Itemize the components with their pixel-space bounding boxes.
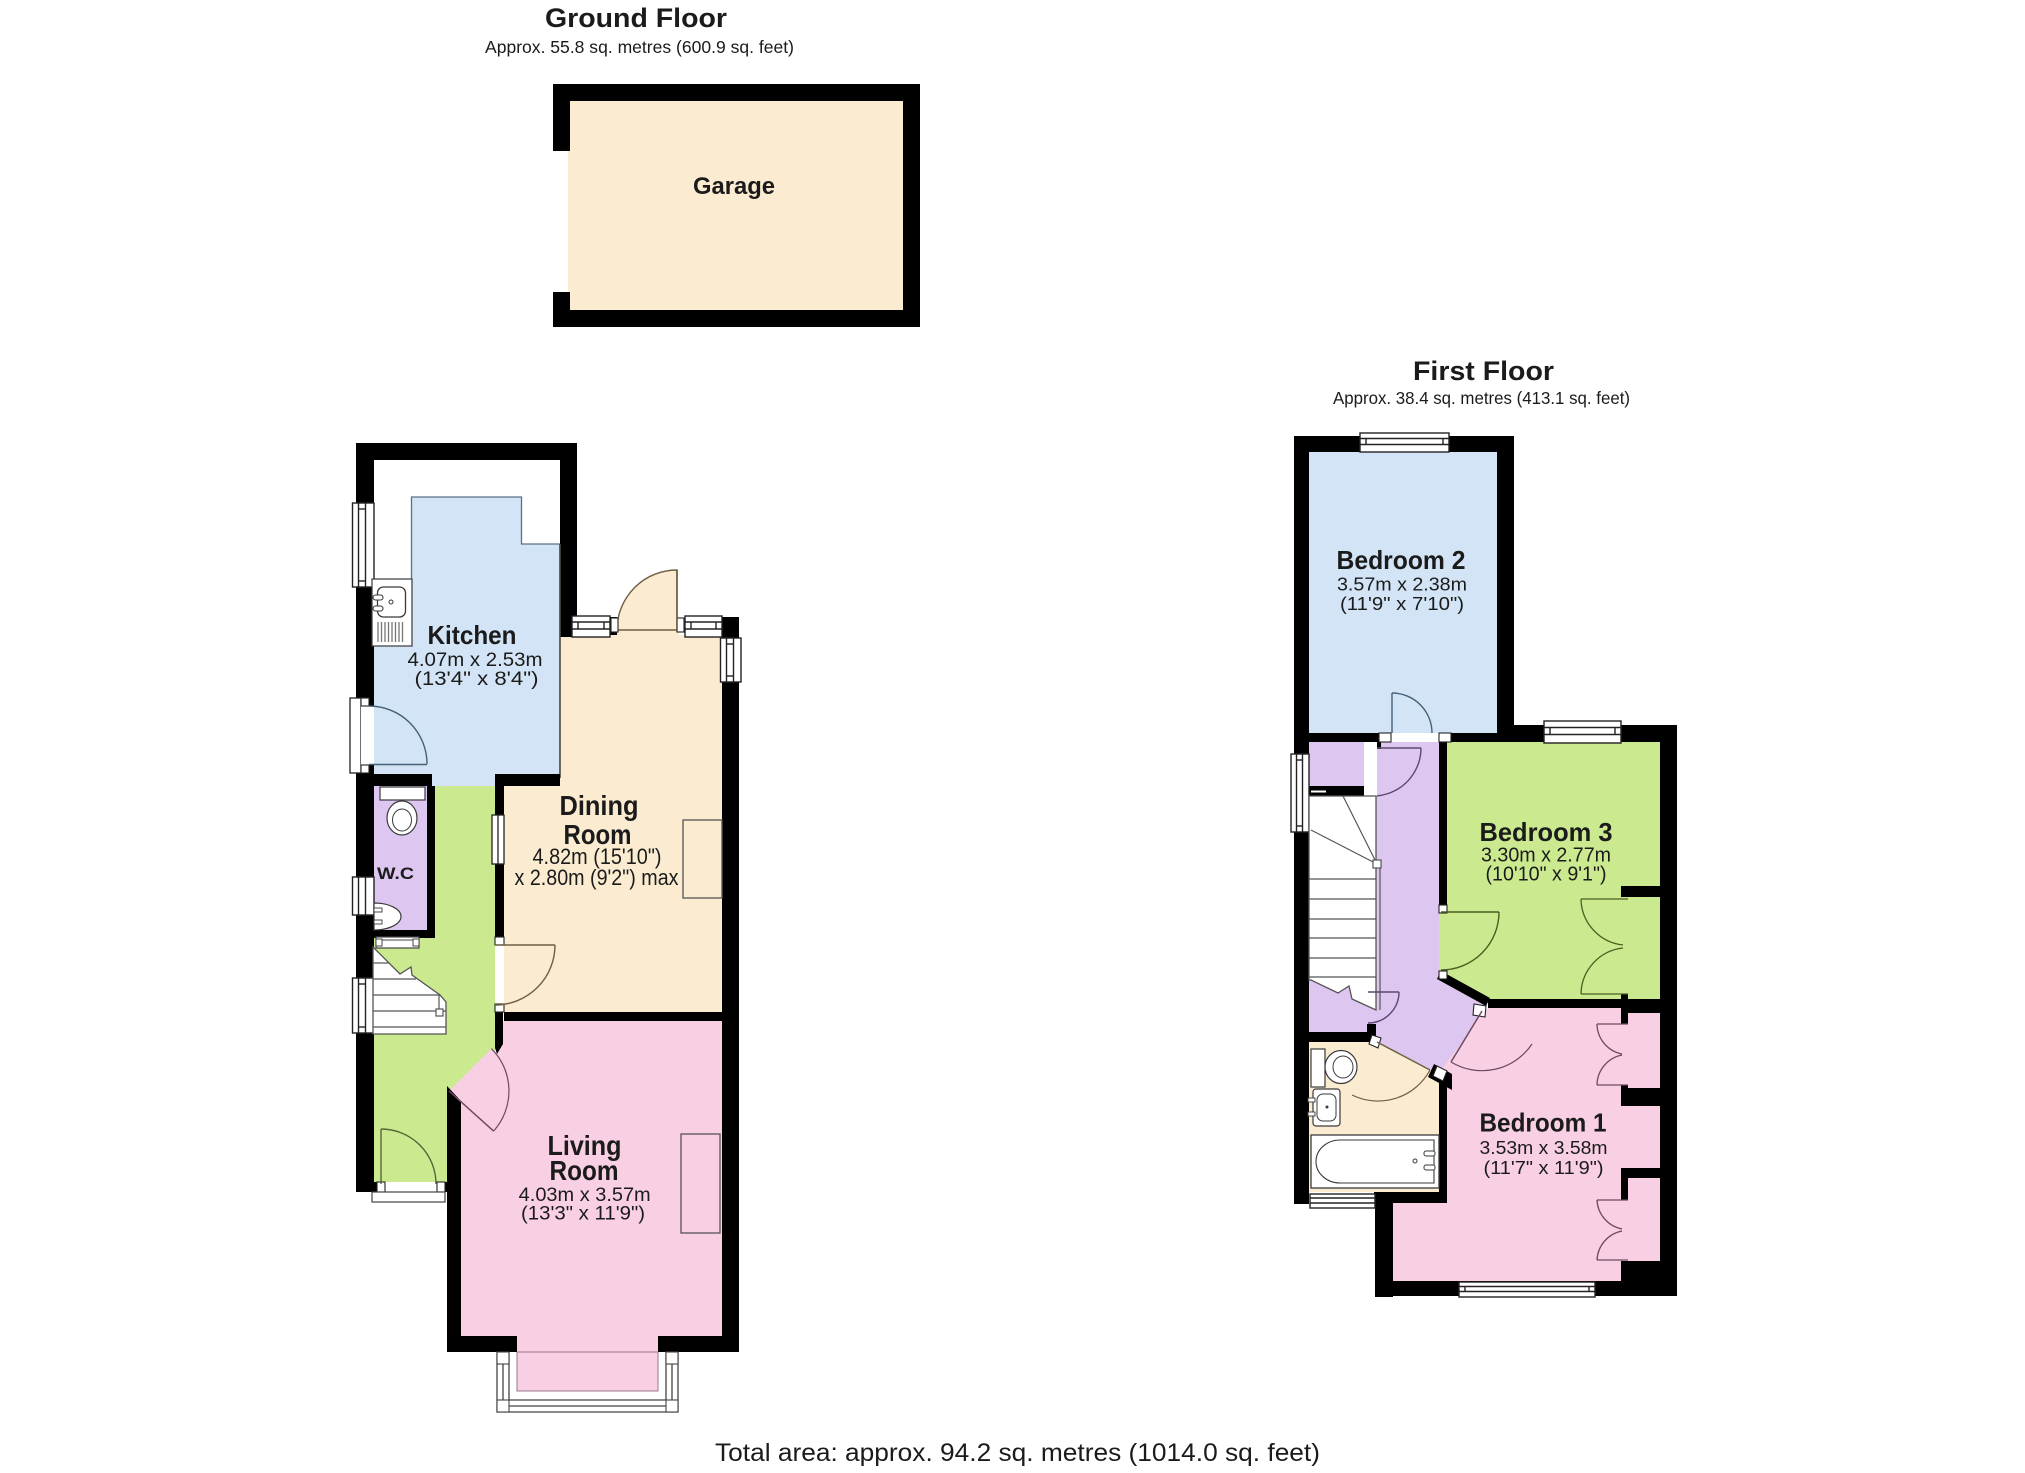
svg-text:Approx. 55.8 sq. metres (600.9: Approx. 55.8 sq. metres (600.9 sq. feet) [485,37,794,57]
svg-text:x 2.80m (9'2") max: x 2.80m (9'2") max [515,865,679,890]
svg-text:(13'4" x 8'4"): (13'4" x 8'4") [415,668,539,690]
svg-text:Bedroom 1: Bedroom 1 [1480,1108,1607,1138]
svg-text:Total area: approx. 94.2 sq. m: Total area: approx. 94.2 sq. metres (101… [715,1439,1320,1467]
svg-text:Bedroom 3: Bedroom 3 [1480,817,1613,847]
svg-text:First Floor: First Floor [1413,356,1555,386]
svg-text:Ground Floor: Ground Floor [545,3,728,33]
svg-text:Bedroom 2: Bedroom 2 [1337,545,1466,575]
svg-text:(10'10" x 9'1"): (10'10" x 9'1") [1486,864,1607,886]
svg-text:3.53m x 3.58m: 3.53m x 3.58m [1480,1137,1608,1158]
svg-text:(11'9" x 7'10"): (11'9" x 7'10") [1340,593,1464,614]
svg-text:Approx. 38.4 sq. metres (413.1: Approx. 38.4 sq. metres (413.1 sq. feet) [1333,388,1630,408]
svg-text:3.57m x 2.38m: 3.57m x 2.38m [1337,574,1467,595]
svg-text:Garage: Garage [693,173,775,200]
svg-text:(13'3" x 11'9"): (13'3" x 11'9") [521,1203,645,1225]
svg-text:Room: Room [550,1155,619,1186]
svg-text:Kitchen: Kitchen [428,620,517,650]
svg-text:Dining: Dining [560,790,639,821]
svg-text:W.C: W.C [377,864,414,883]
svg-text:(11'7" x 11'9"): (11'7" x 11'9") [1484,1157,1604,1178]
